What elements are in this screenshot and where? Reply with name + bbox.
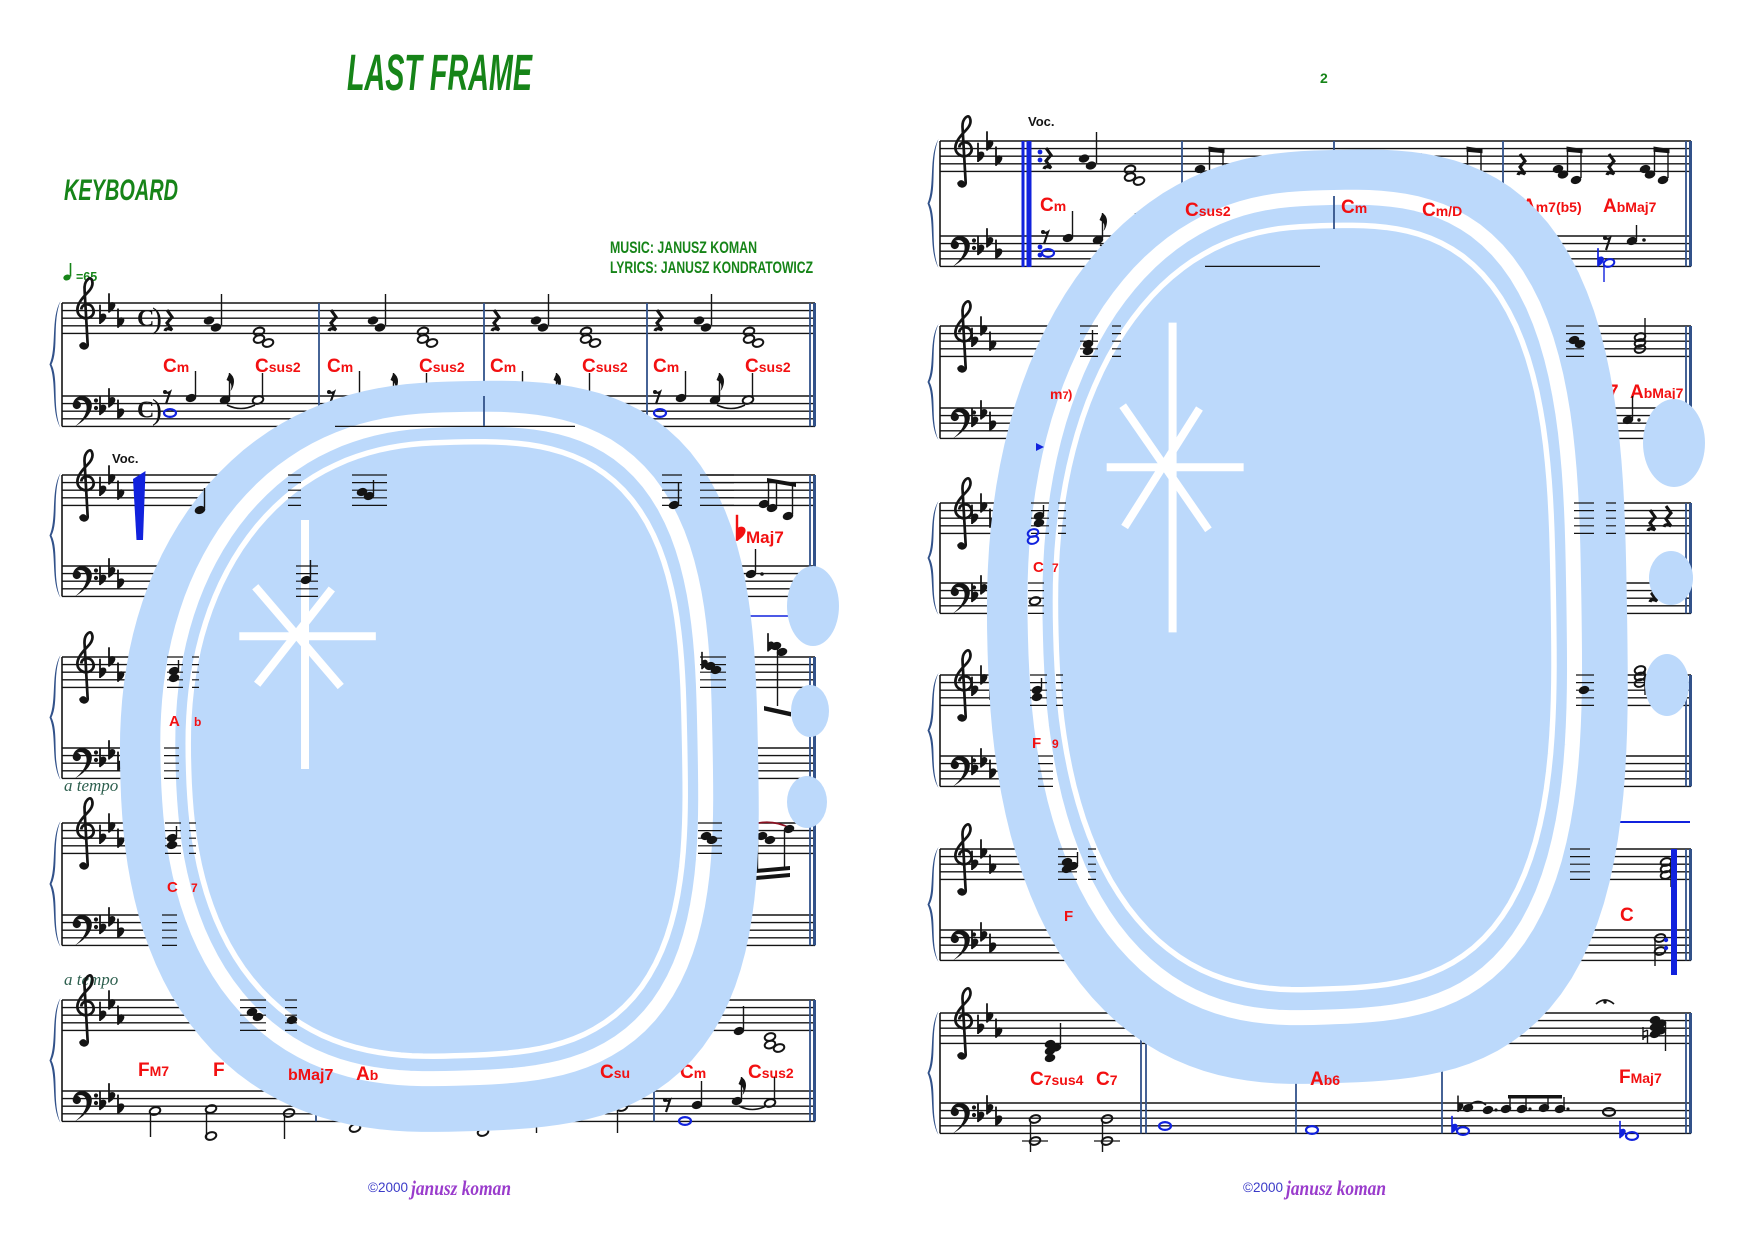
svg-text:C: C [1620, 905, 1634, 926]
svg-text:C7sus4: C7sus4 [1030, 1069, 1084, 1090]
svg-text:Cm/D: Cm/D [1422, 200, 1462, 221]
svg-text:Ab6: Ab6 [1310, 1069, 1340, 1090]
svg-text:7: 7 [1052, 561, 1059, 575]
svg-text:b: b [194, 715, 201, 729]
svg-text:LAST FRAME: LAST FRAME [347, 44, 533, 101]
svg-text:Voc.: Voc. [1028, 114, 1055, 129]
svg-text:MUSIC: JANUSZ KOMAN: MUSIC: JANUSZ KOMAN [610, 238, 757, 257]
svg-text:Csu: Csu [600, 1062, 630, 1083]
svg-text:F: F [1064, 908, 1073, 925]
svg-text:F: F [213, 1060, 225, 1081]
svg-text:Cm: Cm [327, 356, 353, 377]
svg-text:Cm: Cm [490, 356, 516, 377]
svg-text:9: 9 [1052, 737, 1059, 751]
svg-text:©2000: ©2000 [368, 1180, 408, 1195]
svg-text:FM7: FM7 [138, 1060, 169, 1081]
svg-text:7: 7 [191, 881, 198, 895]
svg-text:Cm: Cm [653, 356, 679, 377]
svg-text:Voc.: Voc. [112, 451, 139, 466]
svg-text:Csus2: Csus2 [748, 1062, 794, 1083]
svg-text:AbMaj7: AbMaj7 [1603, 196, 1657, 217]
svg-text:C: C [1033, 559, 1044, 576]
svg-text:KEYBOARD: KEYBOARD [64, 174, 178, 207]
svg-text:C7: C7 [1096, 1069, 1118, 1090]
svg-text:Ab: Ab [356, 1064, 378, 1085]
svg-text:C: C [167, 879, 178, 896]
svg-text:©2000: ©2000 [1243, 1180, 1283, 1195]
svg-text:janusz koman: janusz koman [409, 1176, 511, 1200]
svg-text:janusz koman: janusz koman [1284, 1176, 1386, 1200]
svg-text:FMaj7: FMaj7 [1619, 1067, 1662, 1088]
svg-text:2: 2 [1320, 70, 1328, 86]
svg-text:F: F [1032, 735, 1041, 752]
svg-text:Cm: Cm [1341, 197, 1367, 218]
svg-text:): ) [152, 302, 162, 335]
svg-text:Cm: Cm [1040, 195, 1066, 216]
svg-text:bMaj7: bMaj7 [288, 1067, 333, 1084]
svg-text:a tempo: a tempo [64, 776, 118, 795]
svg-text:Csus2: Csus2 [1185, 200, 1231, 221]
svg-text:A: A [169, 713, 180, 730]
svg-text:): ) [152, 394, 162, 427]
svg-text:LYRICS: JANUSZ KONDRATOWICZ: LYRICS: JANUSZ KONDRATOWICZ [610, 258, 813, 277]
svg-text:): ) [1068, 387, 1072, 402]
svg-text:Maj7: Maj7 [746, 528, 784, 547]
svg-text:Cm: Cm [163, 356, 189, 377]
